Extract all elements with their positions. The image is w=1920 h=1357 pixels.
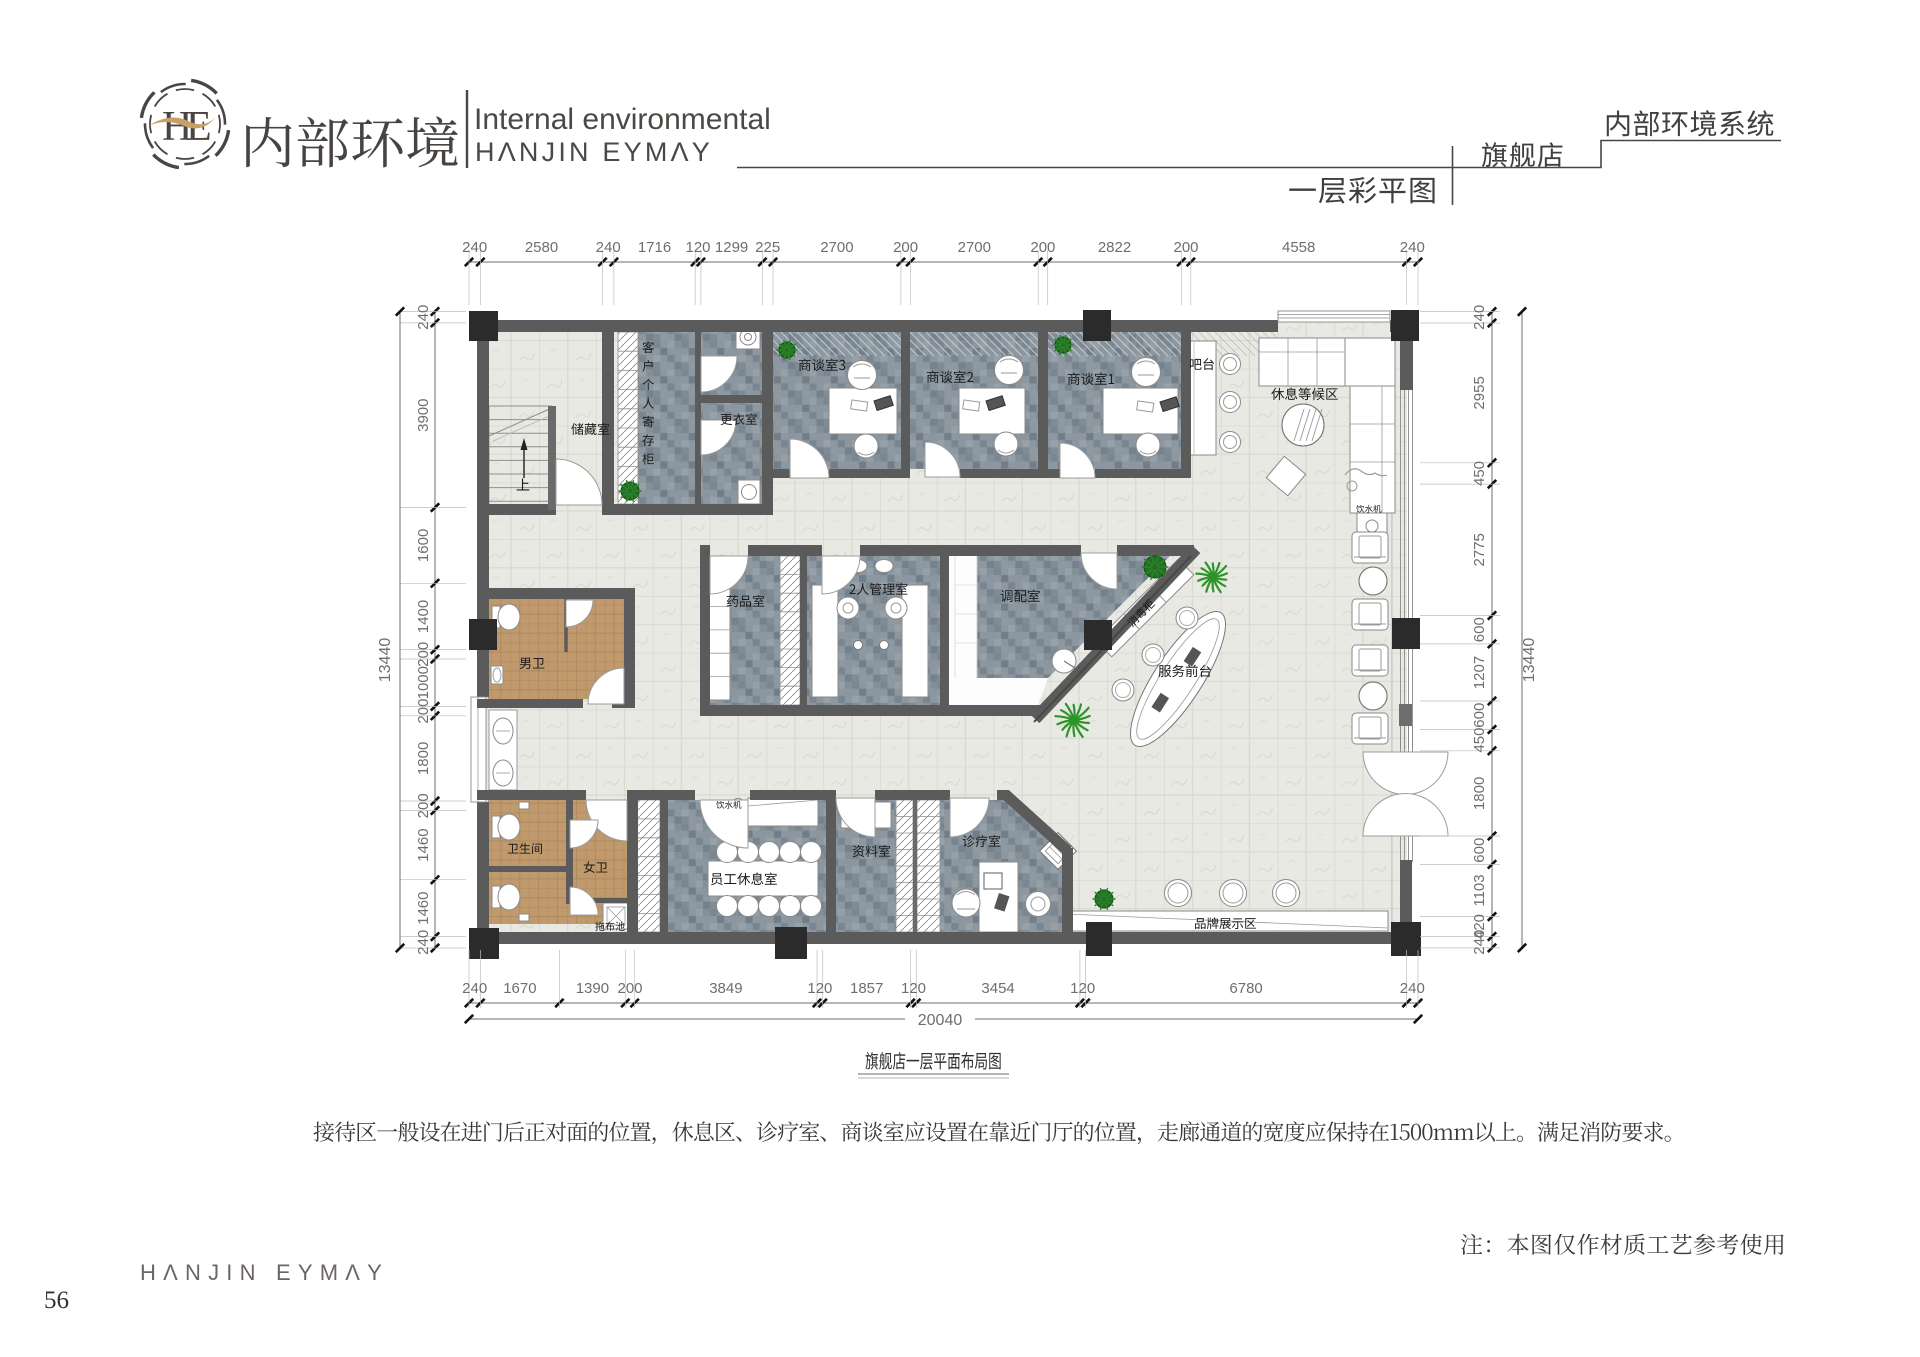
- svg-text:240: 240: [1400, 980, 1425, 997]
- svg-text:200: 200: [1173, 239, 1198, 256]
- svg-text:1460: 1460: [415, 828, 432, 861]
- svg-text:1600: 1600: [415, 529, 432, 562]
- svg-text:2700: 2700: [958, 239, 991, 256]
- svg-text:200: 200: [893, 239, 918, 256]
- svg-text:4558: 4558: [1282, 239, 1315, 256]
- svg-text:20040: 20040: [918, 1012, 963, 1029]
- svg-text:240: 240: [596, 239, 621, 256]
- svg-text:3454: 3454: [981, 980, 1014, 997]
- svg-text:200: 200: [1030, 239, 1055, 256]
- svg-text:1800: 1800: [1471, 777, 1488, 810]
- svg-text:200: 200: [415, 793, 432, 818]
- svg-text:240: 240: [415, 930, 432, 955]
- svg-text:600: 600: [1471, 703, 1488, 728]
- svg-text:240: 240: [462, 980, 487, 997]
- svg-text:1299: 1299: [715, 239, 748, 256]
- svg-text:225: 225: [755, 239, 780, 256]
- svg-text:1857: 1857: [850, 980, 883, 997]
- svg-text:600: 600: [1471, 838, 1488, 863]
- svg-text:200: 200: [415, 642, 432, 667]
- svg-text:13440: 13440: [1521, 638, 1538, 683]
- svg-text:3900: 3900: [415, 399, 432, 432]
- svg-text:450: 450: [1471, 728, 1488, 753]
- svg-text:2955: 2955: [1471, 376, 1488, 409]
- svg-text:1716: 1716: [638, 239, 671, 256]
- svg-text:Internal environmental: Internal environmental: [474, 103, 771, 136]
- svg-text:240: 240: [462, 239, 487, 256]
- svg-text:13440: 13440: [377, 638, 394, 683]
- svg-text:240: 240: [415, 305, 432, 330]
- svg-text:240: 240: [1400, 239, 1425, 256]
- svg-text:2775: 2775: [1471, 533, 1488, 566]
- svg-text:200: 200: [415, 699, 432, 724]
- svg-text:56: 56: [44, 1287, 69, 1314]
- svg-text:3849: 3849: [709, 980, 742, 997]
- svg-text:2580: 2580: [525, 239, 558, 256]
- svg-text:HΛNJIN EYMΛY: HΛNJIN EYMΛY: [140, 1260, 389, 1285]
- svg-text:1103: 1103: [1471, 874, 1488, 906]
- svg-text:1460: 1460: [415, 892, 432, 925]
- svg-text:600: 600: [1471, 617, 1488, 642]
- svg-text:1207: 1207: [1471, 656, 1488, 689]
- svg-text:120: 120: [901, 980, 926, 997]
- svg-text:240: 240: [1471, 305, 1488, 330]
- svg-text:2822: 2822: [1098, 239, 1131, 256]
- svg-text:120: 120: [685, 239, 710, 256]
- svg-text:240: 240: [1471, 930, 1488, 955]
- svg-text:1390: 1390: [576, 980, 609, 997]
- svg-text:6780: 6780: [1229, 980, 1262, 997]
- svg-text:1800: 1800: [415, 742, 432, 775]
- svg-text:120: 120: [1070, 980, 1095, 997]
- svg-text:1400: 1400: [415, 600, 432, 633]
- svg-text:120: 120: [807, 980, 832, 997]
- svg-text:HΛNJIN EYMΛY: HΛNJIN EYMΛY: [475, 137, 713, 167]
- svg-text:200: 200: [617, 980, 642, 997]
- svg-text:1670: 1670: [503, 980, 536, 997]
- svg-text:1000: 1000: [415, 666, 432, 699]
- svg-text:450: 450: [1471, 461, 1488, 486]
- svg-text:2700: 2700: [820, 239, 853, 256]
